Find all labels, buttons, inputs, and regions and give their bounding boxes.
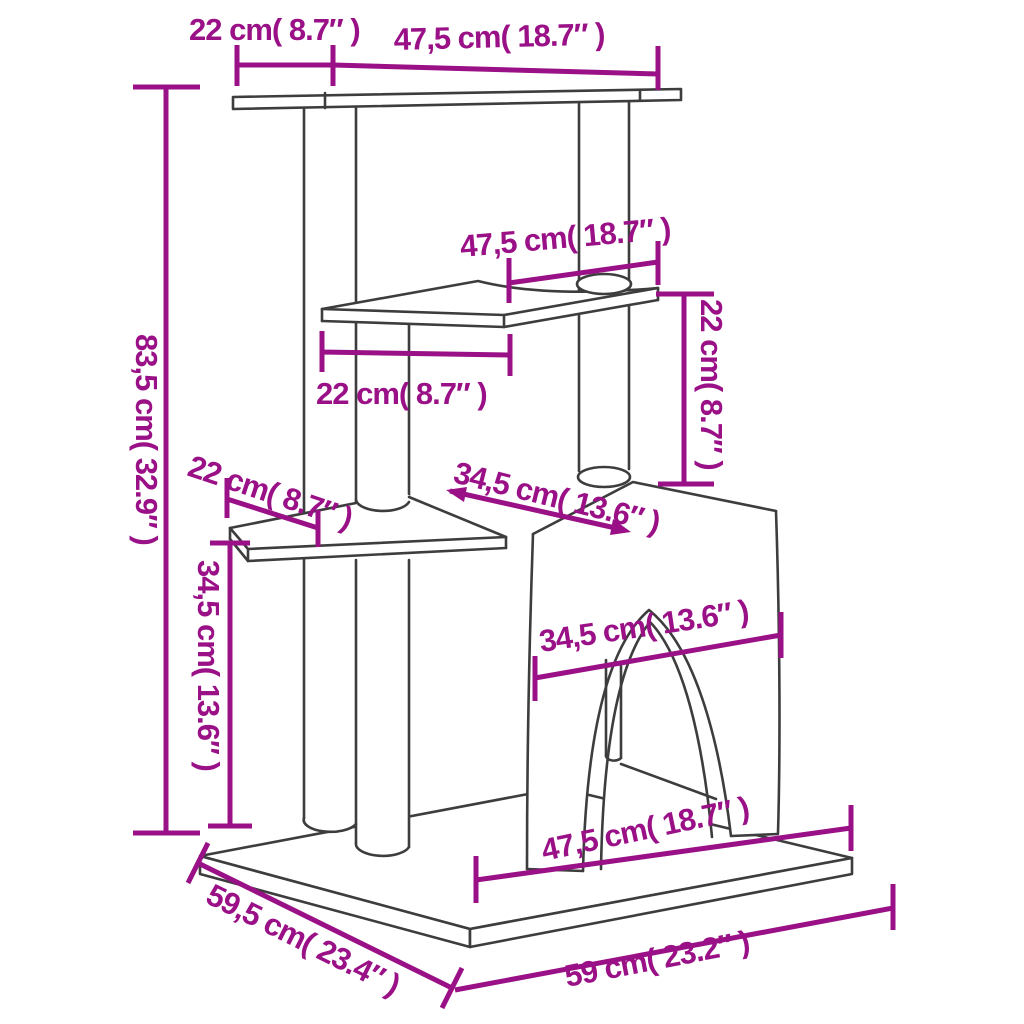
post-hole-house-top — [578, 467, 630, 487]
dim-label: 47,5 cm( 18.7″ ) — [459, 211, 672, 264]
dim-top-platform-right-width: 47,5 cm( 18.7″ ) — [333, 16, 658, 90]
dim-middle-shelf-depth: 22 cm( 8.7″ ) — [316, 331, 510, 411]
dim-label: 83,5 cm( 32.9″ ) — [129, 334, 164, 545]
dim-label: 22 cm( 8.7″ ) — [694, 299, 729, 470]
top-platform — [233, 89, 681, 109]
dim-label: 34,5 cm( 13.6″ ) — [191, 560, 226, 771]
dimension-diagram: 22 cm( 8.7″ ) 47,5 cm( 18.7″ ) 83,5 cm( … — [0, 0, 1024, 1024]
dim-total-height: 83,5 cm( 32.9″ ) — [129, 87, 200, 833]
dim-top-platform-left-width: 22 cm( 8.7″ ) — [189, 12, 360, 86]
post-hole-middle-shelf — [577, 274, 631, 294]
diagram-canvas: 22 cm( 8.7″ ) 47,5 cm( 18.7″ ) 83,5 cm( … — [0, 0, 1024, 1024]
middle-shelf — [322, 274, 658, 327]
dim-label: 22 cm( 8.7″ ) — [316, 376, 487, 411]
dim-label: 22 cm( 8.7″ ) — [189, 12, 360, 47]
dim-lower-section-height: 34,5 cm( 13.6″ ) — [191, 543, 252, 826]
dim-shelf-to-house-height: 22 cm( 8.7″ ) — [656, 294, 729, 484]
dim-label: 47,5 cm( 18.7″ ) — [393, 16, 605, 57]
dim-label: 59 cm( 23.2″ ) — [562, 924, 752, 994]
